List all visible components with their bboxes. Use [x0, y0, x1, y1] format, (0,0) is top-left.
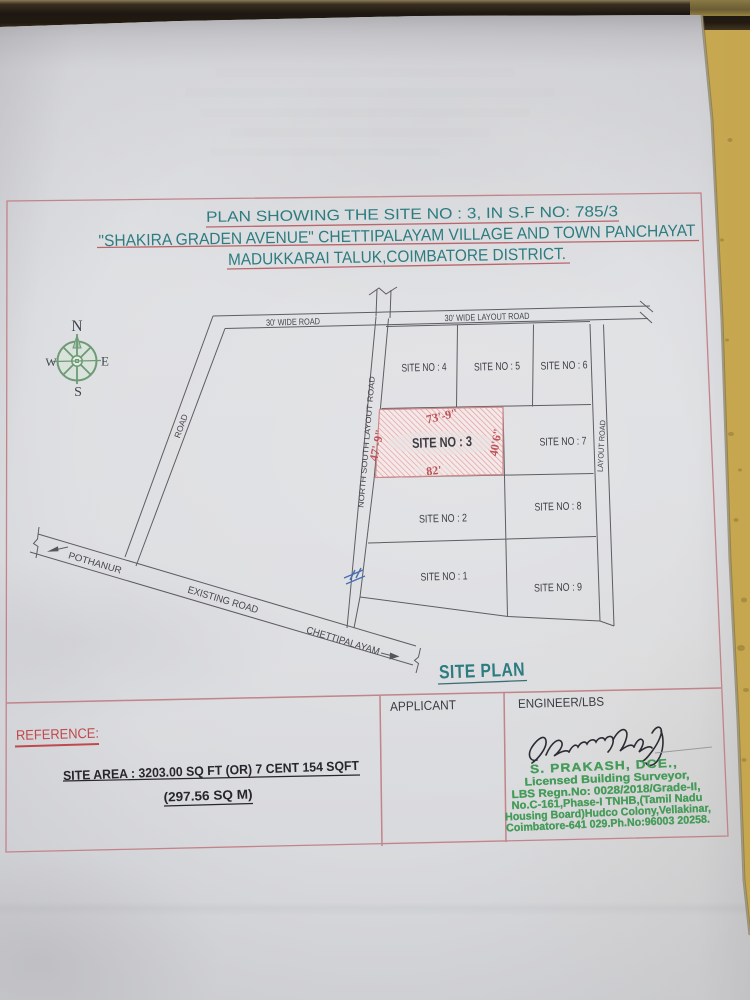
svg-text:SITE AREA : 3203.00 SQ FT (OR: SITE AREA : 3203.00 SQ FT (OR) 7 CENT 15… — [63, 758, 359, 783]
svg-text:ROAD: ROAD — [172, 413, 190, 440]
svg-text:SITE NO : 1: SITE NO : 1 — [420, 570, 467, 583]
svg-text:30' WIDE ROAD: 30' WIDE ROAD — [266, 316, 321, 328]
svg-text:POTHANUR: POTHANUR — [67, 550, 123, 576]
svg-text:SITE NO : 8: SITE NO : 8 — [534, 500, 581, 513]
svg-text:CHETTIPALAYAM: CHETTIPALAYAM — [305, 625, 381, 658]
svg-text:EXISTING ROAD: EXISTING ROAD — [186, 585, 259, 616]
svg-text:ENGINEER/LBS: ENGINEER/LBS — [518, 695, 604, 711]
svg-text:S: S — [74, 385, 82, 400]
svg-text:82': 82' — [425, 463, 442, 479]
svg-text:(297.56 SQ M): (297.56 SQ M) — [163, 786, 252, 804]
svg-text:SITE NO : 4: SITE NO : 4 — [401, 361, 446, 374]
svg-text:MADUKKARAI TALUK,COIMBATORE DI: MADUKKARAI TALUK,COIMBATORE DISTRICT. — [228, 245, 566, 269]
svg-text:SITE NO : 6: SITE NO : 6 — [540, 359, 587, 372]
svg-text:APPLICANT: APPLICANT — [390, 697, 456, 714]
svg-text:LAYOUT ROAD: LAYOUT ROAD — [596, 419, 608, 472]
svg-text:REFERENCE:: REFERENCE: — [16, 725, 99, 743]
svg-text:SITE NO : 3: SITE NO : 3 — [412, 433, 473, 451]
svg-text:N: N — [71, 318, 82, 335]
svg-text:SITE NO : 7: SITE NO : 7 — [539, 435, 586, 448]
svg-text:SITE PLAN: SITE PLAN — [439, 660, 526, 684]
svg-text:SITE NO : 9: SITE NO : 9 — [534, 581, 582, 594]
svg-text:SITE NO : 2: SITE NO : 2 — [419, 512, 467, 525]
svg-text:E: E — [101, 354, 109, 369]
svg-text:W: W — [45, 355, 57, 369]
svg-text:SITE NO : 5: SITE NO : 5 — [474, 360, 520, 373]
